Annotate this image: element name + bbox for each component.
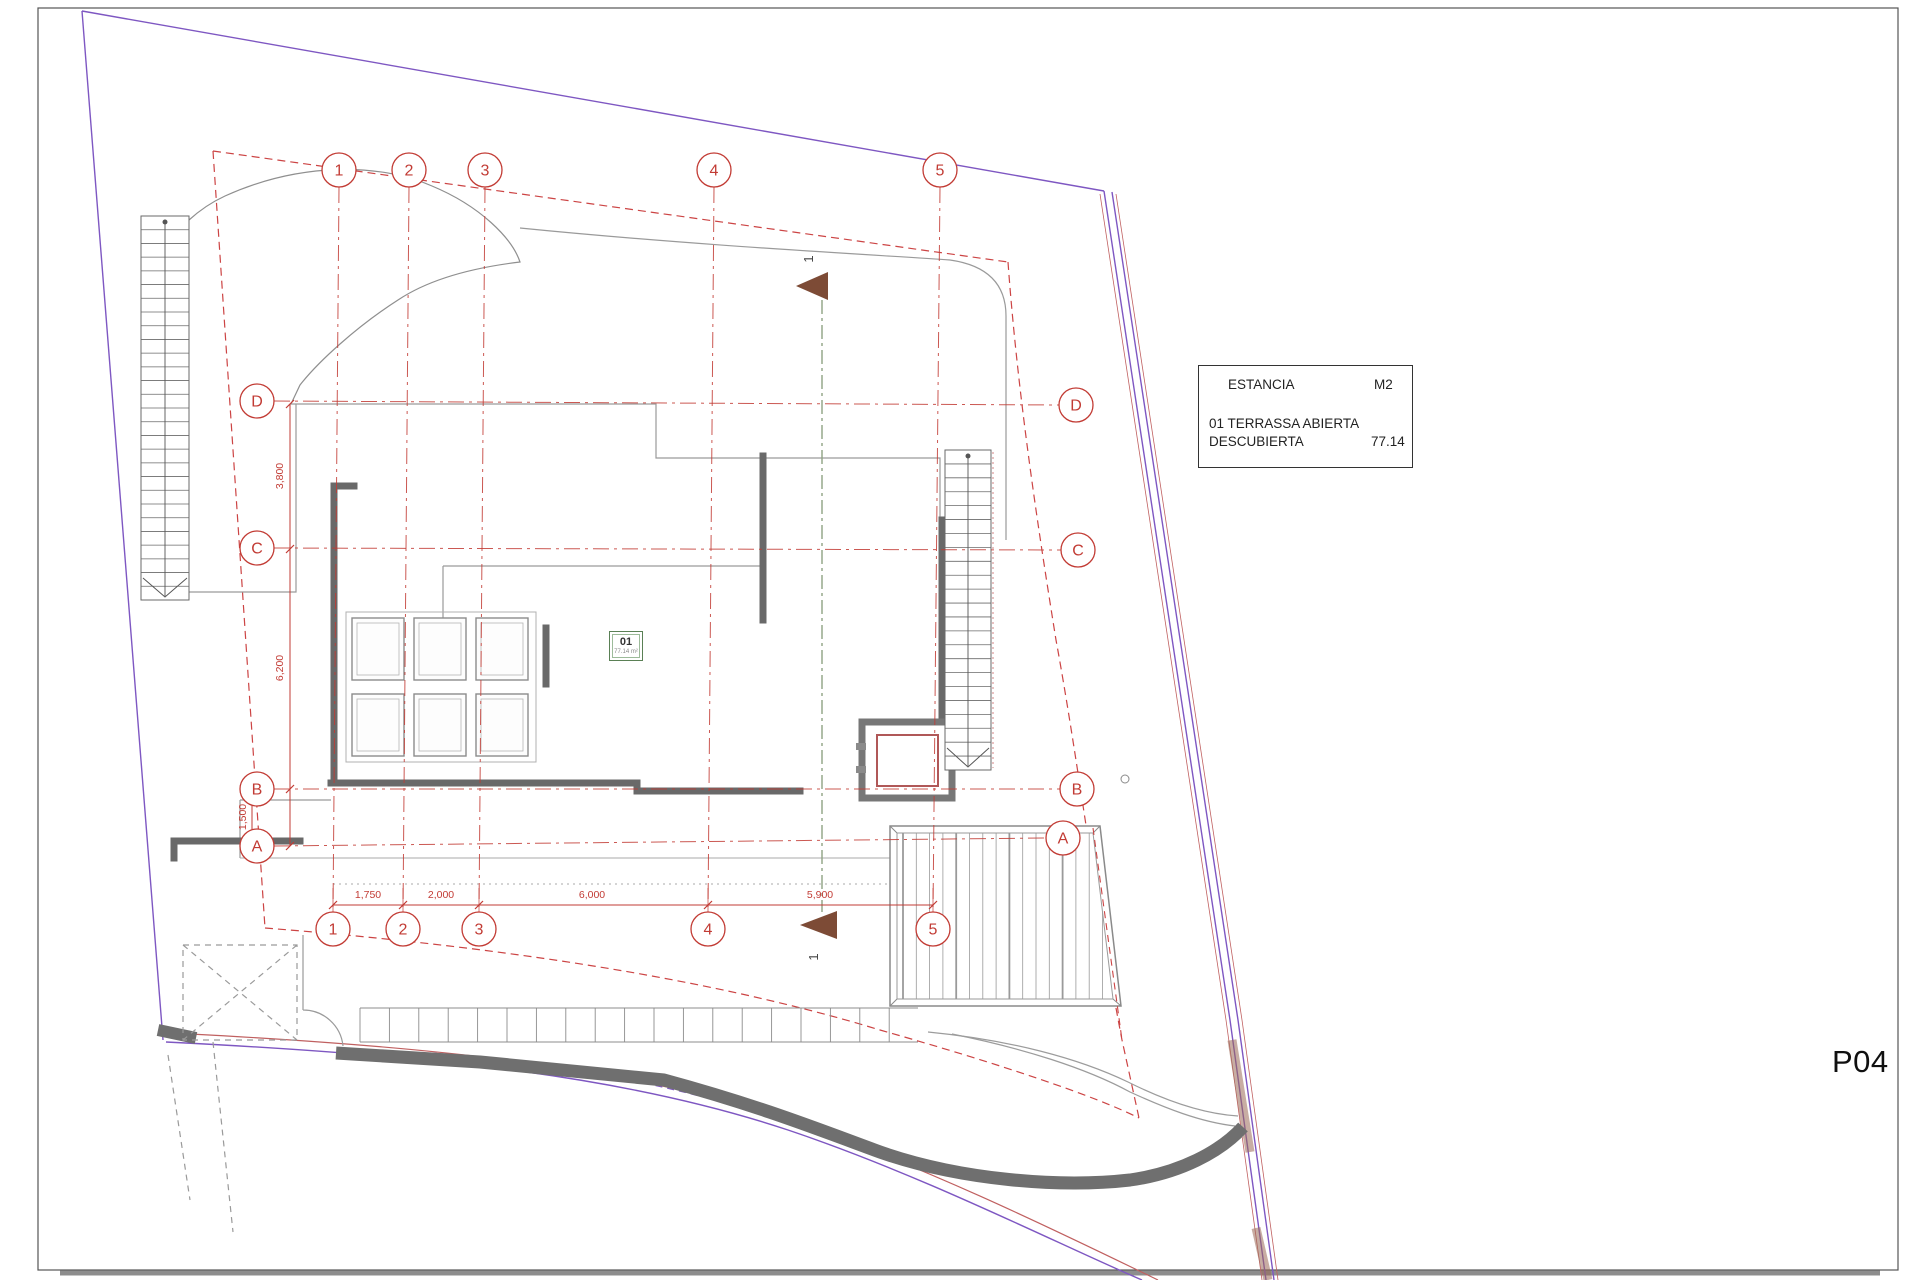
skylight-panel (414, 618, 466, 680)
grid-bubble-label: C (251, 541, 263, 558)
grid-bubble-label: C (1072, 543, 1084, 560)
grid-bubble-label: D (1070, 398, 1082, 415)
dimension-text: 2,000 (428, 889, 454, 901)
section-label-bottom: 1 (806, 953, 821, 960)
grid-bubble-label: A (252, 839, 263, 856)
elevator-rail (856, 766, 866, 773)
dimension-text: 6,000 (579, 889, 605, 901)
grid-bubble-label: 5 (929, 922, 938, 939)
grid-bubble-label: D (251, 394, 263, 411)
skylight-panel (352, 694, 404, 756)
skylight-panel (476, 694, 528, 756)
schedule-header-m2: M2 (1374, 377, 1393, 392)
dimension-text: 3,800 (274, 463, 286, 489)
staircase-right (945, 450, 991, 770)
grid-bubble-label: 5 (936, 163, 945, 180)
room-schedule-table: ESTANCIA M2 01 TERRASSA ABIERTA DESCUBIE… (1198, 365, 1413, 468)
site-plan-drawing: 1 1 1,7502,0006,0005,9003,8006,2001,500 … (0, 0, 1920, 1280)
grid-bubble-label: 2 (405, 163, 414, 180)
schedule-row-area-value: 77.14 (1371, 434, 1405, 449)
dimension-text: 1,500 (237, 804, 249, 830)
grid-bubble-label: B (252, 782, 263, 799)
architectural-site-plan-page: 1 1 1,7502,0006,0005,9003,8006,2001,500 … (0, 0, 1920, 1280)
skylight-panel (414, 694, 466, 756)
stair-start-dot (163, 220, 168, 225)
staircase-left (141, 216, 189, 600)
elevator-rail (856, 743, 866, 750)
room-area: 77.14 m² (610, 649, 642, 656)
grid-bubble-label: 3 (475, 922, 484, 939)
room-tag-01: 01 77.14 m² (609, 631, 643, 661)
grid-bubble-label: 2 (399, 922, 408, 939)
sheet-number: P04 (1832, 1044, 1889, 1080)
dimension-text: 6,200 (274, 655, 286, 681)
skylight-panel (352, 618, 404, 680)
dimension-text: 1,750 (355, 889, 381, 901)
section-label-top: 1 (801, 255, 816, 262)
schedule-row-name-line2: DESCUBIERTA (1209, 434, 1304, 449)
elevator-shaft (856, 722, 952, 798)
schedule-header-estancia: ESTANCIA (1228, 377, 1295, 392)
stair-start-dot (966, 454, 971, 459)
grid-bubble-label: 4 (710, 163, 719, 180)
schedule-row-name-line1: 01 TERRASSA ABIERTA (1209, 416, 1359, 431)
grid-bubble-label: A (1058, 831, 1069, 848)
skylight-panel (476, 618, 528, 680)
room-number: 01 (610, 635, 642, 649)
grid-bubble-label: 3 (481, 163, 490, 180)
grid-bubble-label: 1 (329, 922, 338, 939)
grid-bubble-label: 4 (704, 922, 713, 939)
grid-bubble-label: 1 (335, 163, 344, 180)
grid-bubble-label: B (1072, 782, 1083, 799)
dimension-text: 5,900 (807, 889, 833, 901)
